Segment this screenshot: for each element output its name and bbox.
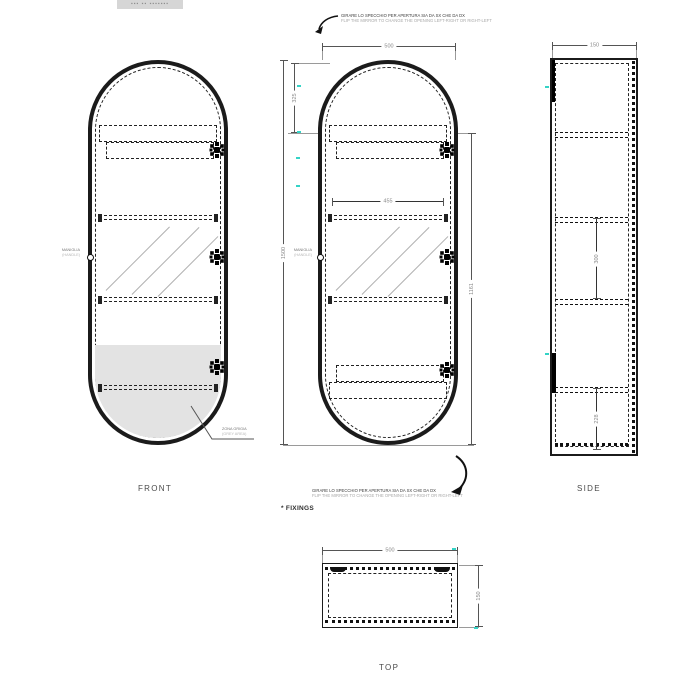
side-shelf-line-1 [555, 132, 628, 138]
side-view-label: SIDE [577, 484, 601, 493]
side-shelf-line-4 [555, 387, 628, 393]
dim-shelf-gap-mid-value: 300 [594, 251, 600, 266]
side-view-cabinet: 300 228 [550, 58, 638, 456]
flip-mirror-note-top: GIRARE LO SPECCHIO PER APERTURA SIA DA S… [341, 13, 492, 24]
dim-door-height-value: 1161 [469, 280, 475, 298]
side-shelf-line-2 [555, 217, 628, 223]
grey-zone-leader-line [188, 404, 260, 444]
snap-mark [474, 627, 478, 629]
flip-arrow-top-icon [314, 13, 340, 35]
hinge-icon [330, 567, 346, 572]
hinge-icon [214, 364, 220, 370]
dim-top-width-value: 500 [382, 548, 397, 554]
dim-inner-width-value: 455 [380, 199, 395, 205]
side-mirror-edge-block [552, 60, 555, 102]
fixings-note: * FIXINGS [281, 505, 314, 512]
snap-mark [296, 185, 300, 187]
snap-mark [296, 157, 300, 159]
mid-bottom-shelf-box-outer [329, 382, 447, 399]
dim-top-depth-value: 150 [476, 588, 482, 603]
dim-top-width: 500 [322, 550, 458, 551]
front-top-shelf-box-inner [106, 142, 214, 159]
top-view-label: TOP [379, 663, 399, 672]
front-top-shelf-box-outer [99, 125, 217, 142]
dim-overall-height: 1500 [283, 60, 284, 445]
logo-blurred: ▪▪▪ ▪▪ ▪▪▪▪▪▪▪ [117, 0, 183, 9]
hinge-icon [444, 147, 450, 153]
snap-mark [545, 86, 549, 88]
hinge-icon [214, 147, 220, 153]
flip-mirror-note-en: FLIP THE MIRROR TO CHANGE THE OPENING LE… [341, 18, 492, 23]
handle-label-en: (HANDLE) [286, 253, 312, 258]
front-shelf-line-3 [99, 385, 217, 390]
top-view-front-band [325, 620, 455, 623]
dim-depth-value: 150 [587, 43, 602, 49]
top-view-cabinet [322, 563, 458, 628]
flip-mirror-note-en: FLIP THE MIRROR TO CHANGE THE OPENING LE… [312, 493, 463, 498]
handle-label-en: (HANDLE) [46, 253, 80, 258]
dim-shelf-gap-bottom: 228 [596, 388, 597, 450]
mid-top-shelf-box-inner [336, 142, 444, 159]
dim-top-depth: 150 [478, 565, 479, 627]
front-view-label: FRONT [138, 484, 172, 493]
extension-line [283, 445, 474, 446]
snap-mark [545, 353, 549, 355]
flip-arrow-bottom-icon [447, 454, 473, 496]
extension-line [294, 63, 330, 64]
grey-zone-label: ZONA GRIGIA (GREY AREA) [222, 427, 262, 436]
dim-depth: 150 [552, 45, 637, 46]
snap-mark [297, 85, 301, 87]
dim-overall-width-value: 500 [381, 44, 396, 50]
dimensioned-front-view-cabinet: 455 [318, 60, 458, 445]
front-shelf-line-2 [99, 297, 217, 302]
top-view-inner-dashed [328, 573, 452, 618]
side-shelf-line-3 [555, 299, 628, 305]
hinge-icon [214, 254, 220, 260]
hinge-icon [444, 367, 450, 373]
dim-top-offset-value: 325 [292, 90, 298, 105]
mid-top-shelf-box-outer [329, 125, 447, 142]
dim-inner-width: 455 [332, 201, 444, 202]
grey-zone-label-en: (GREY AREA) [222, 432, 262, 437]
door-handle-knob [87, 254, 94, 261]
door-handle-knob [317, 254, 324, 261]
snap-mark [452, 548, 456, 550]
mid-shelf-line-1 [329, 215, 447, 220]
drawing-canvas: ▪▪▪ ▪▪ ▪▪▪▪▪▪▪ MANIGLIA (HANDLE) ZONA GR… [0, 0, 700, 700]
mid-shelf-line-2 [329, 297, 447, 302]
dim-overall-width: 500 [322, 46, 456, 47]
dim-top-offset: 325 [294, 63, 295, 133]
hinge-icon [434, 567, 450, 572]
mid-bottom-shelf-box-inner [336, 365, 444, 382]
front-view-cabinet [88, 60, 228, 445]
handle-label-front: MANIGLIA (HANDLE) [46, 248, 80, 257]
dim-shelf-gap-mid: 300 [596, 218, 597, 299]
snap-mark [297, 131, 301, 133]
side-front-edge-dotted [632, 61, 635, 453]
flip-mirror-note-bottom: GIRARE LO SPECCHIO PER APERTURA SIA DA S… [312, 488, 463, 499]
dim-shelf-gap-bottom-value: 228 [594, 411, 600, 426]
side-bottom-band [555, 443, 628, 446]
hinge-icon [444, 254, 450, 260]
front-shelf-line-1 [99, 215, 217, 220]
dim-door-height: 1161 [471, 133, 472, 445]
handle-label-mid: MANIGLIA (HANDLE) [286, 248, 312, 257]
